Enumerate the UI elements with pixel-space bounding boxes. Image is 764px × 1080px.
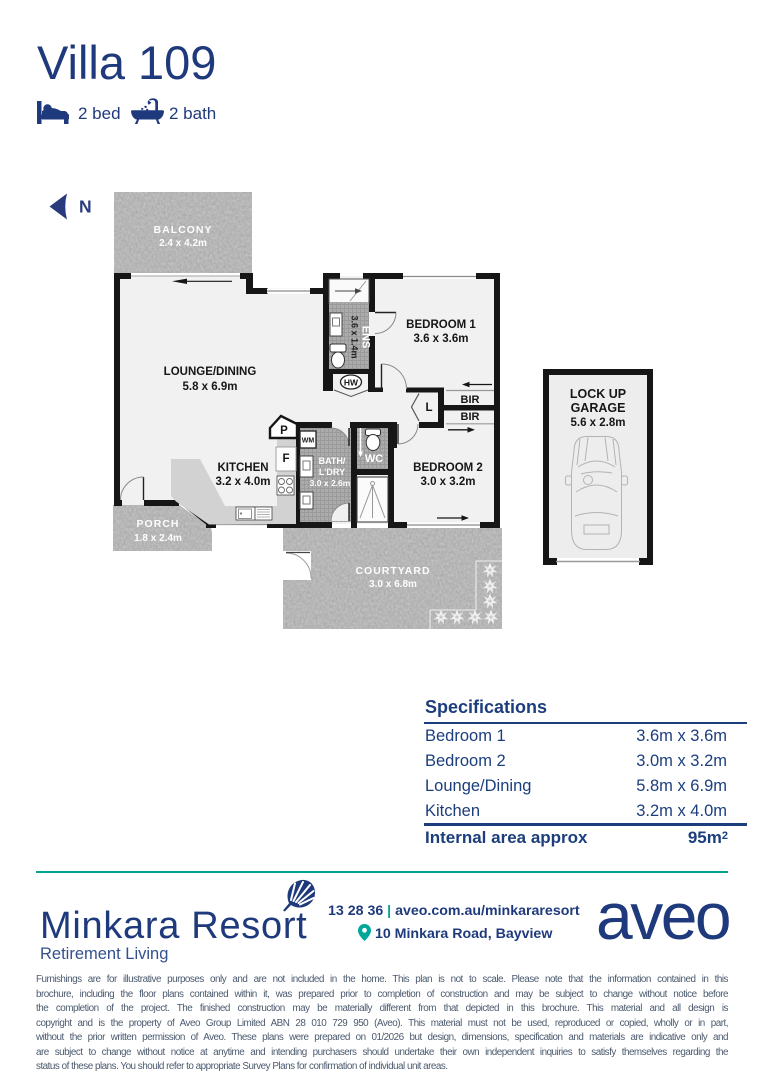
svg-text:P: P: [280, 425, 288, 437]
svg-text:HW: HW: [344, 378, 359, 388]
svg-text:BATH/: BATH/: [319, 456, 346, 466]
svg-text:L: L: [425, 402, 432, 414]
svg-text:BEDROOM 1: BEDROOM 1: [406, 319, 476, 331]
svg-text:1.8 x 2.4m: 1.8 x 2.4m: [134, 533, 182, 544]
svg-text:WC: WC: [365, 453, 383, 465]
svg-text:GARAGE: GARAGE: [571, 401, 626, 415]
svg-text:BEDROOM 2: BEDROOM 2: [413, 462, 483, 474]
svg-text:3.6 x 1.4m: 3.6 x 1.4m: [350, 315, 360, 358]
svg-text:ENS: ENS: [360, 326, 372, 349]
svg-text:PORCH: PORCH: [137, 518, 180, 530]
svg-text:3.6 x 3.6m: 3.6 x 3.6m: [414, 333, 469, 345]
svg-text:F: F: [282, 453, 289, 465]
svg-text:BIR: BIR: [461, 394, 480, 406]
svg-text:3.0 x 2.6m: 3.0 x 2.6m: [310, 478, 351, 488]
svg-text:2.4 x 4.2m: 2.4 x 4.2m: [159, 238, 207, 249]
svg-text:3.2 x 4.0m: 3.2 x 4.0m: [216, 476, 271, 488]
svg-text:3.0 x 3.2m: 3.0 x 3.2m: [421, 476, 476, 488]
svg-text:5.8 x 6.9m: 5.8 x 6.9m: [183, 381, 238, 393]
svg-text:LOCK UP: LOCK UP: [570, 387, 626, 401]
svg-text:KITCHEN: KITCHEN: [217, 462, 268, 474]
svg-text:3.0 x 6.8m: 3.0 x 6.8m: [369, 579, 417, 590]
svg-text:5.6 x 2.8m: 5.6 x 2.8m: [571, 417, 626, 429]
svg-text:LOUNGE/DINING: LOUNGE/DINING: [164, 366, 257, 378]
svg-text:L’DRY: L’DRY: [319, 467, 345, 477]
svg-text:COURTYARD: COURTYARD: [355, 565, 430, 577]
svg-text:BIR: BIR: [461, 411, 480, 423]
svg-text:N: N: [79, 197, 92, 217]
svg-text:BALCONY: BALCONY: [154, 224, 213, 236]
svg-text:WM: WM: [302, 438, 315, 445]
